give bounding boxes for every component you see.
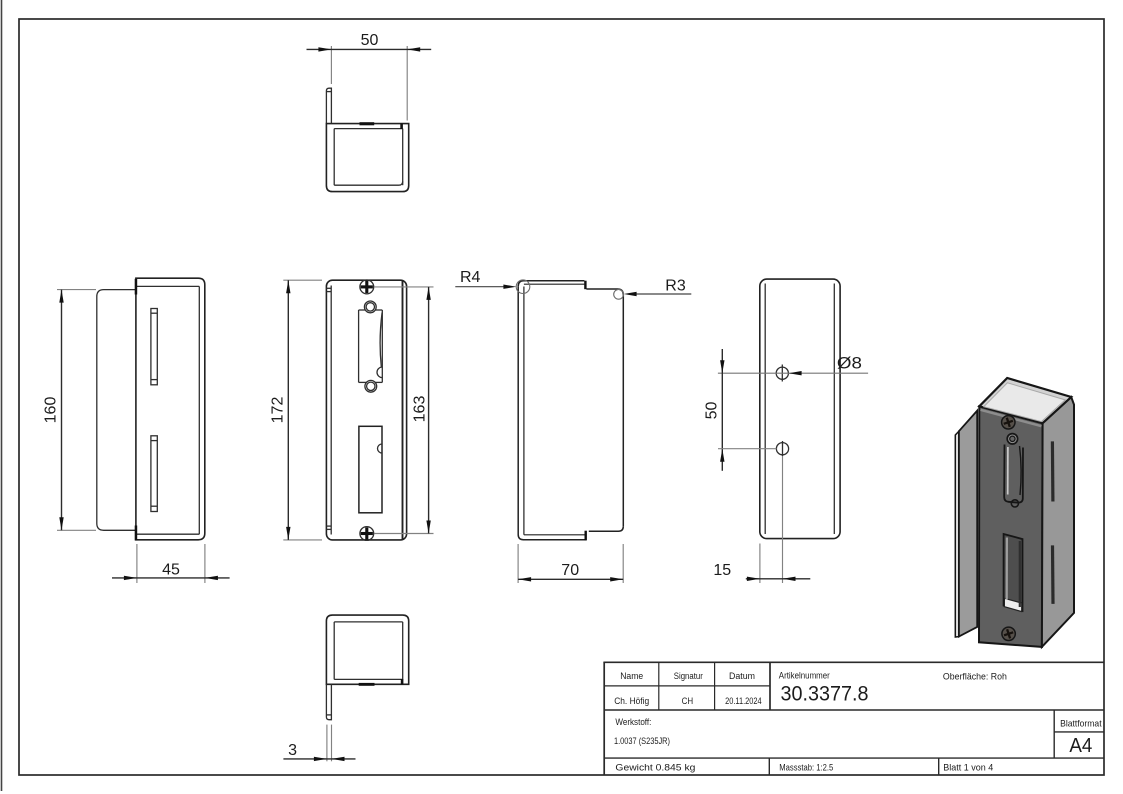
svg-text:Oberfläche: Roh: Oberfläche: Roh	[943, 671, 1007, 681]
svg-text:30.3377.8: 30.3377.8	[781, 683, 869, 706]
svg-text:172: 172	[270, 397, 287, 424]
svg-text:15: 15	[713, 562, 731, 579]
svg-text:Massstab: 1:2.5: Massstab: 1:2.5	[779, 762, 833, 772]
svg-text:Blattformat: Blattformat	[1060, 719, 1102, 729]
svg-text:20.11.2024: 20.11.2024	[725, 696, 762, 706]
svg-text:CH: CH	[682, 696, 694, 706]
svg-text:163: 163	[412, 396, 429, 423]
svg-text:160: 160	[43, 397, 60, 424]
svg-text:A4: A4	[1069, 734, 1092, 757]
svg-text:Gewicht 0.845 kg: Gewicht 0.845 kg	[615, 762, 695, 772]
svg-text:Name: Name	[620, 671, 643, 681]
svg-text:Signatur: Signatur	[674, 671, 703, 681]
svg-text:45: 45	[162, 562, 180, 579]
svg-text:50: 50	[361, 32, 379, 49]
svg-text:3: 3	[288, 742, 297, 759]
svg-text:Datum: Datum	[729, 671, 755, 681]
svg-text:Ø8: Ø8	[837, 354, 862, 372]
svg-text:Artikelnummer: Artikelnummer	[779, 671, 830, 681]
svg-text:R3: R3	[665, 277, 686, 294]
svg-text:Blatt 1 von 4: Blatt 1 von 4	[943, 762, 993, 772]
svg-text:R4: R4	[460, 269, 481, 286]
svg-text:50: 50	[704, 402, 721, 420]
svg-text:Werkstoff:: Werkstoff:	[615, 717, 651, 727]
svg-text:Ch. Höfig: Ch. Höfig	[614, 696, 649, 706]
svg-text:70: 70	[561, 562, 579, 579]
svg-text:1.0037 (S235JR): 1.0037 (S235JR)	[614, 736, 670, 746]
